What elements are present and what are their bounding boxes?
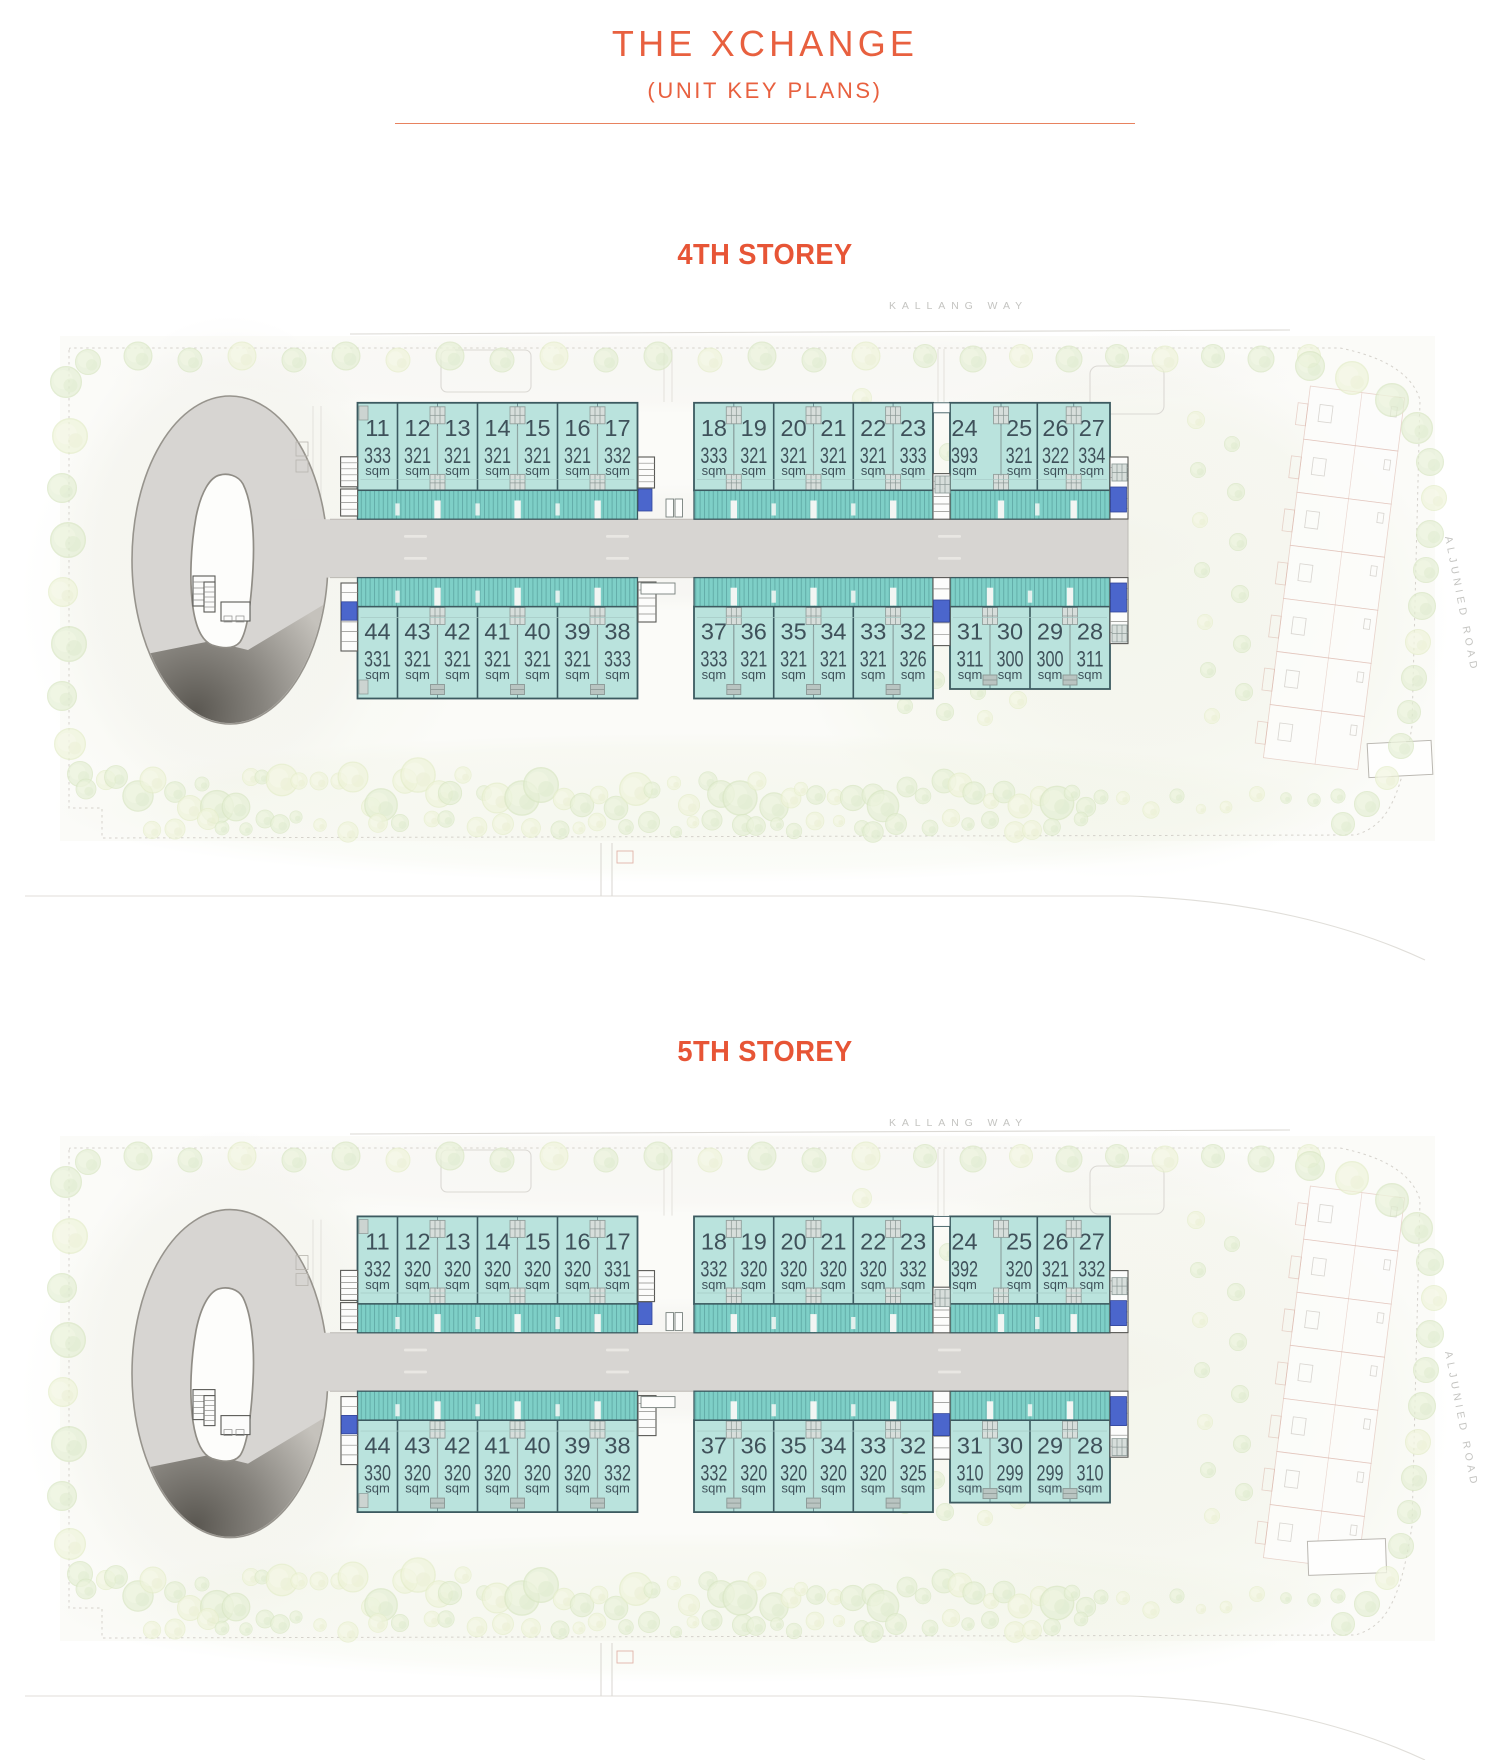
svg-text:34: 34 bbox=[820, 619, 846, 645]
svg-text:16: 16 bbox=[564, 1229, 590, 1255]
svg-text:sqm: sqm bbox=[702, 667, 727, 682]
svg-text:sqm: sqm bbox=[901, 1481, 926, 1496]
svg-text:30: 30 bbox=[997, 619, 1023, 645]
svg-text:15: 15 bbox=[524, 415, 550, 441]
svg-text:sqm: sqm bbox=[741, 1481, 766, 1496]
svg-text:sqm: sqm bbox=[365, 1277, 390, 1292]
svg-text:29: 29 bbox=[1037, 1432, 1063, 1458]
svg-text:sqm: sqm bbox=[998, 1481, 1023, 1496]
svg-text:12: 12 bbox=[404, 415, 430, 441]
svg-text:sqm: sqm bbox=[781, 463, 806, 478]
svg-text:36: 36 bbox=[741, 1432, 767, 1458]
svg-text:sqm: sqm bbox=[1078, 1481, 1103, 1496]
svg-text:24: 24 bbox=[951, 415, 977, 441]
svg-text:sqm: sqm bbox=[952, 1277, 977, 1292]
svg-text:sqm: sqm bbox=[741, 463, 766, 478]
svg-text:41: 41 bbox=[484, 1432, 510, 1458]
svg-text:KALLANG WAY: KALLANG WAY bbox=[889, 1117, 1028, 1129]
svg-text:35: 35 bbox=[781, 619, 807, 645]
svg-text:sqm: sqm bbox=[1043, 463, 1068, 478]
svg-text:sqm: sqm bbox=[485, 1481, 510, 1496]
svg-text:KALLANG WAY: KALLANG WAY bbox=[889, 300, 1028, 312]
svg-text:19: 19 bbox=[741, 1229, 767, 1255]
svg-text:sqm: sqm bbox=[605, 667, 630, 682]
svg-text:sqm: sqm bbox=[901, 1277, 926, 1292]
svg-text:sqm: sqm bbox=[958, 1481, 983, 1496]
svg-text:sqm: sqm bbox=[861, 1277, 886, 1292]
svg-text:33: 33 bbox=[860, 1432, 886, 1458]
svg-text:20: 20 bbox=[781, 1229, 807, 1255]
svg-text:15: 15 bbox=[524, 1229, 550, 1255]
svg-text:sqm: sqm bbox=[565, 1481, 590, 1496]
svg-text:sqm: sqm bbox=[485, 667, 510, 682]
svg-text:12: 12 bbox=[404, 1229, 430, 1255]
svg-text:17: 17 bbox=[604, 1229, 630, 1255]
svg-text:sqm: sqm bbox=[445, 1277, 470, 1292]
svg-text:38: 38 bbox=[604, 619, 630, 645]
svg-text:44: 44 bbox=[364, 1432, 390, 1458]
svg-text:sqm: sqm bbox=[565, 463, 590, 478]
svg-text:sqm: sqm bbox=[741, 1277, 766, 1292]
svg-text:sqm: sqm bbox=[958, 667, 983, 682]
svg-text:sqm: sqm bbox=[821, 1277, 846, 1292]
svg-text:19: 19 bbox=[741, 415, 767, 441]
svg-text:sqm: sqm bbox=[1080, 463, 1105, 478]
svg-text:32: 32 bbox=[900, 619, 926, 645]
svg-text:sqm: sqm bbox=[781, 1277, 806, 1292]
svg-text:16: 16 bbox=[564, 415, 590, 441]
svg-text:29: 29 bbox=[1037, 619, 1063, 645]
svg-text:sqm: sqm bbox=[861, 463, 886, 478]
svg-text:sqm: sqm bbox=[702, 1277, 727, 1292]
svg-text:14: 14 bbox=[484, 415, 510, 441]
svg-text:sqm: sqm bbox=[365, 1481, 390, 1496]
svg-text:18: 18 bbox=[701, 1229, 727, 1255]
svg-text:sqm: sqm bbox=[525, 1277, 550, 1292]
svg-text:34: 34 bbox=[820, 1432, 846, 1458]
svg-text:13: 13 bbox=[444, 1229, 470, 1255]
svg-text:sqm: sqm bbox=[405, 1277, 430, 1292]
svg-text:40: 40 bbox=[524, 1432, 550, 1458]
svg-text:24: 24 bbox=[951, 1229, 977, 1255]
svg-text:20: 20 bbox=[781, 415, 807, 441]
svg-text:27: 27 bbox=[1079, 415, 1105, 441]
svg-text:23: 23 bbox=[900, 415, 926, 441]
svg-text:sqm: sqm bbox=[1007, 463, 1032, 478]
svg-text:13: 13 bbox=[444, 415, 470, 441]
svg-text:11: 11 bbox=[365, 1229, 389, 1255]
svg-text:sqm: sqm bbox=[605, 1277, 630, 1292]
svg-text:39: 39 bbox=[564, 619, 590, 645]
svg-text:sqm: sqm bbox=[702, 463, 727, 478]
svg-text:23: 23 bbox=[900, 1229, 926, 1255]
svg-text:25: 25 bbox=[1006, 1229, 1032, 1255]
svg-text:sqm: sqm bbox=[1080, 1277, 1105, 1292]
svg-text:44: 44 bbox=[364, 619, 390, 645]
svg-text:22: 22 bbox=[860, 1229, 886, 1255]
svg-text:sqm: sqm bbox=[605, 463, 630, 478]
svg-text:sqm: sqm bbox=[1043, 1277, 1068, 1292]
svg-text:39: 39 bbox=[564, 1432, 590, 1458]
svg-text:11: 11 bbox=[365, 415, 389, 441]
svg-text:37: 37 bbox=[701, 1432, 727, 1458]
svg-text:sqm: sqm bbox=[821, 463, 846, 478]
svg-text:sqm: sqm bbox=[901, 463, 926, 478]
svg-text:31: 31 bbox=[957, 619, 983, 645]
svg-text:28: 28 bbox=[1077, 619, 1103, 645]
svg-text:sqm: sqm bbox=[1038, 1481, 1063, 1496]
svg-text:sqm: sqm bbox=[405, 667, 430, 682]
svg-text:sqm: sqm bbox=[405, 1481, 430, 1496]
svg-text:42: 42 bbox=[444, 1432, 470, 1458]
svg-text:sqm: sqm bbox=[952, 463, 977, 478]
svg-text:38: 38 bbox=[604, 1432, 630, 1458]
svg-text:28: 28 bbox=[1077, 1432, 1103, 1458]
svg-text:sqm: sqm bbox=[365, 463, 390, 478]
svg-text:30: 30 bbox=[997, 1432, 1023, 1458]
svg-text:43: 43 bbox=[404, 1432, 430, 1458]
svg-text:sqm: sqm bbox=[485, 463, 510, 478]
svg-text:32: 32 bbox=[900, 1432, 926, 1458]
svg-text:sqm: sqm bbox=[781, 667, 806, 682]
svg-text:42: 42 bbox=[444, 619, 470, 645]
svg-text:sqm: sqm bbox=[1078, 667, 1103, 682]
svg-text:sqm: sqm bbox=[998, 667, 1023, 682]
svg-text:41: 41 bbox=[484, 619, 510, 645]
svg-text:sqm: sqm bbox=[565, 1277, 590, 1292]
svg-text:37: 37 bbox=[701, 619, 727, 645]
svg-text:26: 26 bbox=[1042, 415, 1068, 441]
svg-text:sqm: sqm bbox=[821, 1481, 846, 1496]
svg-text:31: 31 bbox=[957, 1432, 983, 1458]
svg-text:43: 43 bbox=[404, 619, 430, 645]
svg-text:sqm: sqm bbox=[781, 1481, 806, 1496]
svg-text:sqm: sqm bbox=[445, 1481, 470, 1496]
svg-text:35: 35 bbox=[781, 1432, 807, 1458]
svg-text:sqm: sqm bbox=[1007, 1277, 1032, 1292]
svg-text:sqm: sqm bbox=[741, 667, 766, 682]
svg-text:sqm: sqm bbox=[525, 667, 550, 682]
svg-text:sqm: sqm bbox=[861, 1481, 886, 1496]
svg-text:sqm: sqm bbox=[405, 463, 430, 478]
svg-text:sqm: sqm bbox=[861, 667, 886, 682]
svg-text:21: 21 bbox=[820, 415, 846, 441]
svg-text:sqm: sqm bbox=[901, 667, 926, 682]
svg-text:14: 14 bbox=[484, 1229, 510, 1255]
svg-text:40: 40 bbox=[524, 619, 550, 645]
svg-text:18: 18 bbox=[701, 415, 727, 441]
svg-text:33: 33 bbox=[860, 619, 886, 645]
svg-text:22: 22 bbox=[860, 415, 886, 441]
svg-text:sqm: sqm bbox=[702, 1481, 727, 1496]
svg-text:sqm: sqm bbox=[605, 1481, 630, 1496]
svg-text:36: 36 bbox=[741, 619, 767, 645]
svg-text:26: 26 bbox=[1042, 1229, 1068, 1255]
svg-text:25: 25 bbox=[1006, 415, 1032, 441]
svg-text:17: 17 bbox=[604, 415, 630, 441]
svg-text:sqm: sqm bbox=[365, 667, 390, 682]
svg-text:sqm: sqm bbox=[445, 463, 470, 478]
svg-text:sqm: sqm bbox=[565, 667, 590, 682]
svg-text:27: 27 bbox=[1079, 1229, 1105, 1255]
svg-text:sqm: sqm bbox=[525, 463, 550, 478]
svg-text:sqm: sqm bbox=[525, 1481, 550, 1496]
svg-text:sqm: sqm bbox=[445, 667, 470, 682]
svg-text:sqm: sqm bbox=[485, 1277, 510, 1292]
svg-text:sqm: sqm bbox=[1038, 667, 1063, 682]
svg-text:21: 21 bbox=[820, 1229, 846, 1255]
svg-text:sqm: sqm bbox=[821, 667, 846, 682]
